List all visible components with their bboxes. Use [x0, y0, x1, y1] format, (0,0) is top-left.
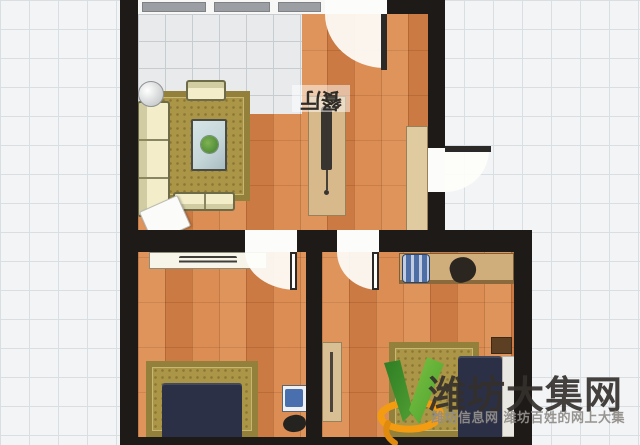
grid-background: 餐厅: [0, 0, 640, 445]
coat-rack-base: [324, 190, 329, 195]
entrance-door-arc: [445, 150, 489, 192]
top-wall-window-band: [138, 0, 325, 14]
left-bedroom-door-panel: [290, 252, 297, 290]
window-pane: [214, 2, 270, 12]
coat-rack-stem: [326, 170, 328, 190]
logo-v-left: [384, 360, 413, 422]
plant: [201, 136, 218, 153]
round-side-table: [138, 81, 164, 107]
desk-chair: [402, 254, 430, 283]
entrance-door-panel: [445, 146, 491, 152]
right-bedroom-door-panel: [372, 252, 379, 290]
bed-left: [162, 383, 242, 437]
dining-label: 餐厅: [294, 86, 348, 116]
wardrobe-slat: [330, 352, 333, 412]
nightstand-left-item: [285, 389, 303, 407]
entry-cabinet: [406, 126, 428, 234]
top-room-door-panel: [381, 14, 387, 70]
right-bedroom-door-opening: [337, 230, 379, 252]
window-pane: [142, 2, 206, 12]
window-pane: [278, 2, 321, 12]
top-room-door-opening: [325, 0, 387, 14]
entrance-door-opening: [428, 148, 445, 192]
wall-middle: [120, 230, 532, 252]
wall-left: [120, 0, 138, 445]
wall-right-upper: [428, 0, 445, 240]
tv-shelf-slats: [179, 256, 237, 265]
nightstand-right: [491, 337, 512, 354]
wall-bottom: [120, 437, 532, 445]
left-bedroom-door-opening: [245, 230, 297, 252]
watermark-subtitle: 潍坊信息网 潍坊百姓的网上大集: [431, 407, 625, 426]
wall-bedroom-divider: [306, 252, 322, 437]
armchair-top: [186, 80, 226, 101]
